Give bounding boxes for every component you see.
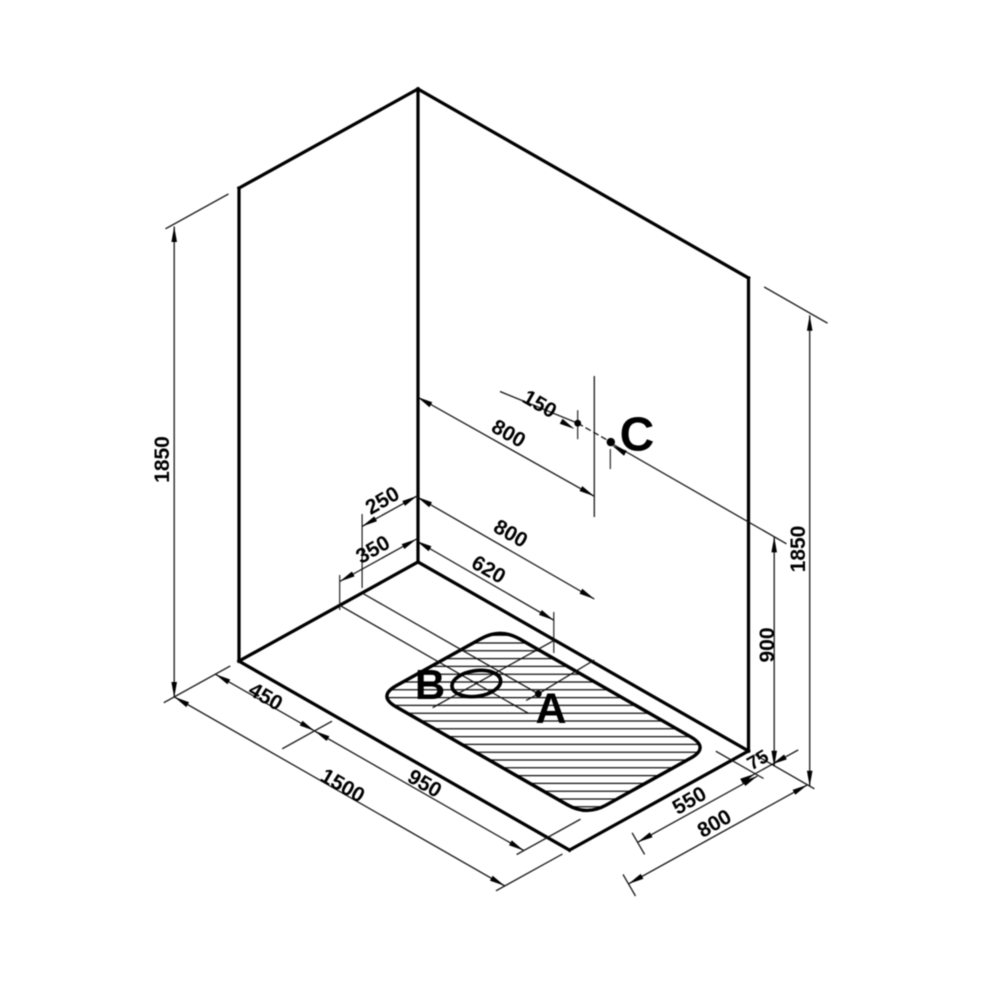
svg-text:B: B [415,661,445,708]
svg-text:900: 900 [756,627,779,662]
svg-text:1850: 1850 [151,436,174,483]
svg-text:C: C [620,408,655,461]
svg-text:A: A [535,685,566,733]
svg-text:1850: 1850 [787,526,810,573]
